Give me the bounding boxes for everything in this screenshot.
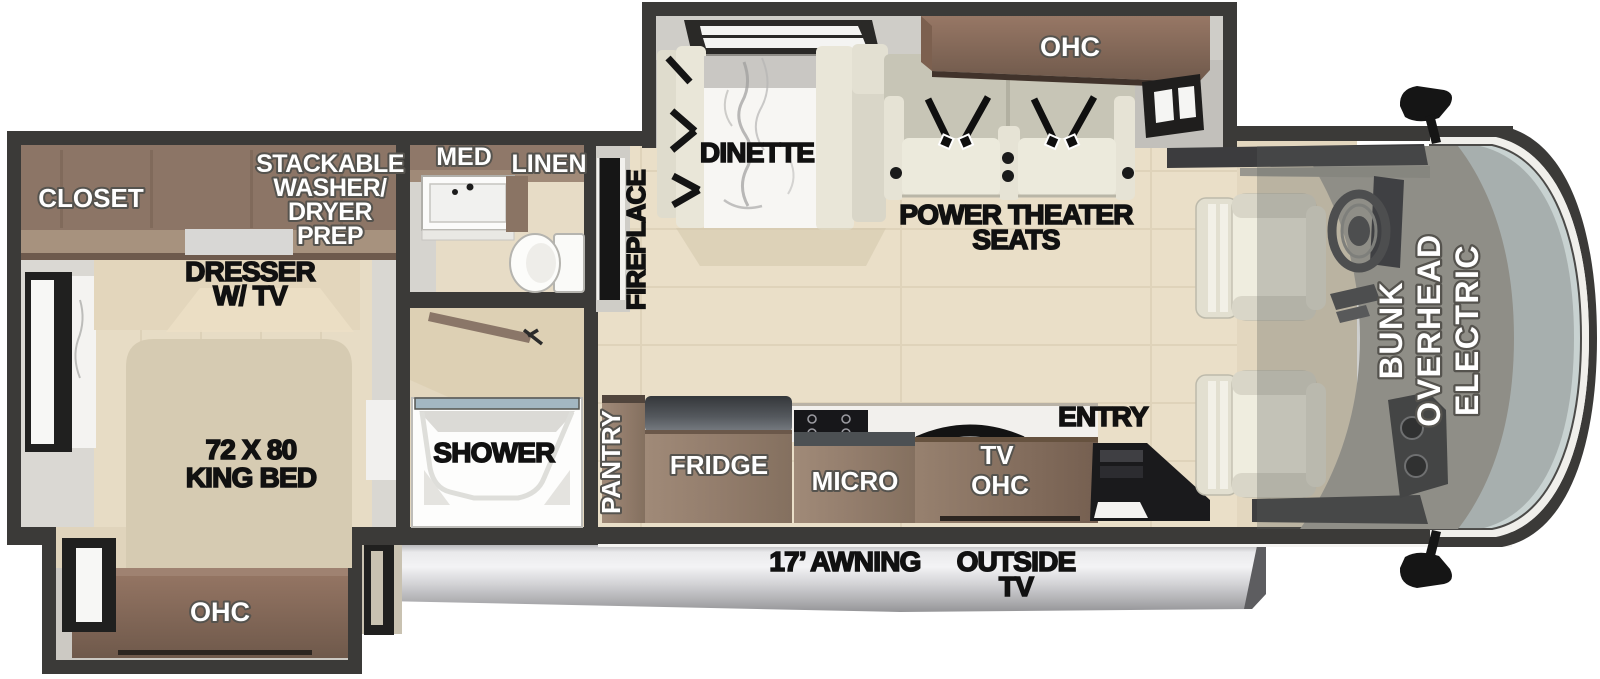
svg-text:DINETTE: DINETTE: [700, 137, 814, 168]
svg-text:PREP: PREP: [297, 222, 363, 250]
svg-text:SHOWER: SHOWER: [433, 437, 555, 468]
svg-text:BUNK: BUNK: [1373, 281, 1409, 379]
svg-text:ENTRY: ENTRY: [1058, 401, 1149, 432]
svg-text:CLOSET: CLOSET: [38, 183, 144, 213]
svg-text:OVERHEAD: OVERHEAD: [1411, 233, 1447, 426]
svg-text:MED: MED: [436, 143, 492, 171]
svg-text:FRIDGE: FRIDGE: [670, 450, 768, 480]
svg-text:KING BED: KING BED: [186, 462, 317, 493]
svg-text:W/ TV: W/ TV: [213, 280, 288, 311]
svg-text:OHC: OHC: [190, 597, 250, 627]
svg-text:OHC: OHC: [1040, 32, 1100, 62]
svg-text:ELECTRIC: ELECTRIC: [1449, 244, 1485, 416]
svg-text:FIREPLACE: FIREPLACE: [621, 169, 651, 310]
svg-text:TV: TV: [980, 440, 1014, 470]
svg-text:72 X 80: 72 X 80: [206, 434, 297, 465]
svg-text:17’ AWNING: 17’ AWNING: [769, 546, 920, 577]
svg-text:OHC: OHC: [971, 470, 1029, 500]
svg-text:LINEN: LINEN: [512, 150, 587, 178]
svg-text:PANTRY: PANTRY: [596, 410, 626, 514]
svg-text:MICRO: MICRO: [812, 466, 899, 496]
svg-text:SEATS: SEATS: [972, 224, 1059, 255]
svg-text:TV: TV: [999, 571, 1034, 602]
